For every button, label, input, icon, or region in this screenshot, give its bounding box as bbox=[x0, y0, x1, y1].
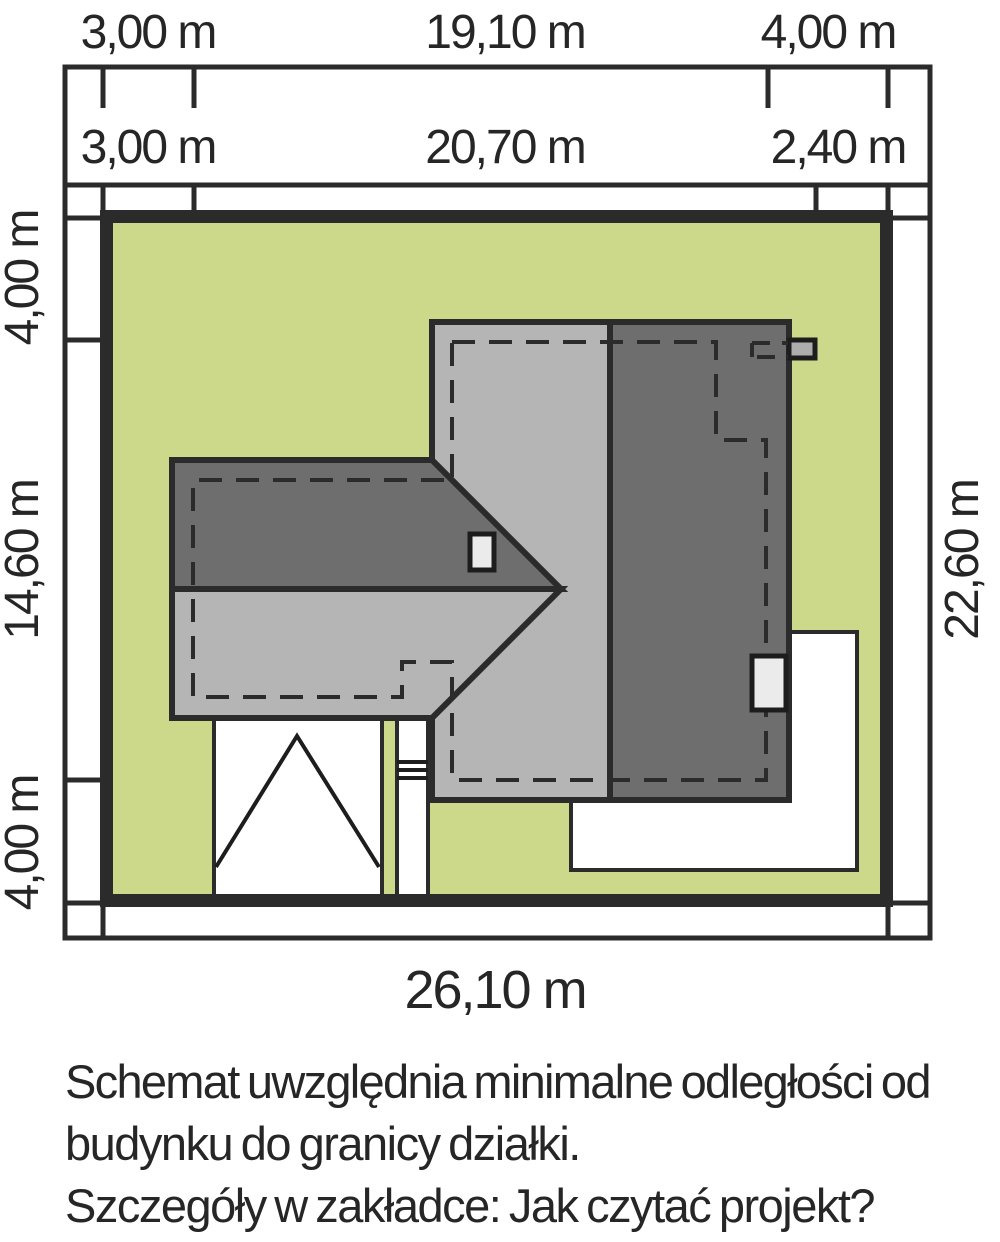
chimney bbox=[470, 534, 494, 570]
entrance-walkway bbox=[397, 718, 428, 896]
top-row1-ticks bbox=[103, 67, 888, 108]
dim-top2-left: 3,00 m bbox=[81, 121, 216, 174]
dim-left-mid: 14,60 m bbox=[0, 480, 49, 639]
dim-top1-left: 3,00 m bbox=[81, 6, 216, 59]
bottom-note: Schemat uwzględnia minimalne odległości … bbox=[65, 1055, 930, 1232]
roof-vent bbox=[789, 340, 815, 358]
note-line-3: Szczegóły w zakładce: Jak czytać projekt… bbox=[65, 1179, 874, 1232]
bottom-band-ticks bbox=[103, 905, 888, 938]
garage-driveway bbox=[214, 718, 382, 896]
dim-top1-right: 4,00 m bbox=[761, 6, 896, 59]
note-line-2: budynku do granicy działki. bbox=[65, 1117, 580, 1170]
site-plan-drawing: 3,00 m 19,10 m 4,00 m 3,00 m 20,70 m 2,4… bbox=[0, 0, 1000, 1242]
dim-left-bottom: 4,00 m bbox=[0, 776, 49, 911]
dim-right-full: 22,60 m bbox=[936, 480, 989, 639]
right-band-ticks bbox=[893, 218, 930, 903]
side-door bbox=[752, 656, 786, 710]
dim-top2-mid: 20,70 m bbox=[425, 121, 584, 174]
note-line-1: Schemat uwzględnia minimalne odległości … bbox=[65, 1055, 930, 1108]
dim-top1-mid: 19,10 m bbox=[425, 6, 584, 59]
dim-left-top: 4,00 m bbox=[0, 211, 49, 346]
dim-top2-right: 2,40 m bbox=[771, 121, 906, 174]
dim-bottom-full: 26,10 m bbox=[404, 960, 585, 1020]
left-band-ticks bbox=[65, 218, 103, 903]
site-plan-page: 3,00 m 19,10 m 4,00 m 3,00 m 20,70 m 2,4… bbox=[0, 0, 1000, 1242]
house-roof-slope-dark bbox=[610, 322, 789, 800]
